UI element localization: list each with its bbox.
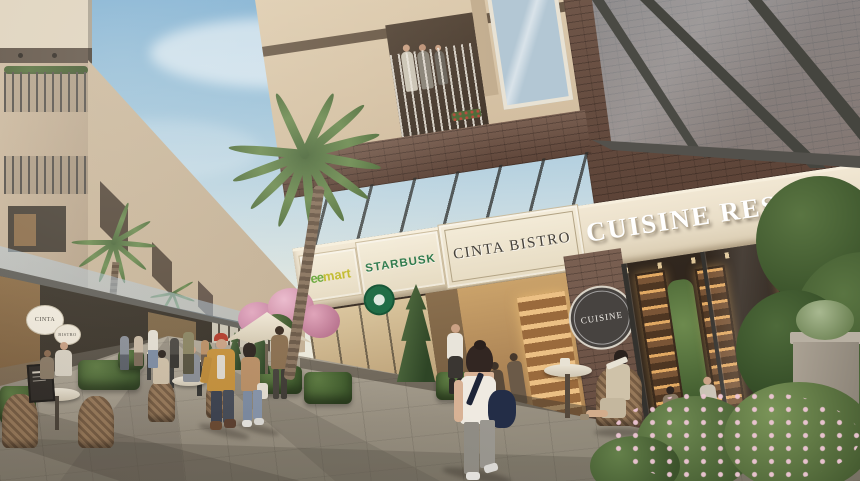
table-item [560, 358, 570, 366]
pedestrian [134, 336, 143, 366]
starbusk-sign-label: STARBUSK [365, 253, 437, 275]
pedestrian [183, 332, 194, 374]
balcony-railing [4, 72, 88, 112]
left-building-fascia [0, 0, 92, 50]
cinta-oval-label: CINTA [35, 317, 55, 323]
left-building-soffit [0, 48, 92, 63]
bush-flowers [610, 390, 860, 481]
hair-bun [474, 340, 486, 350]
bistro-oval-sign: BISTRO [54, 324, 81, 345]
umbrella-pole [265, 344, 268, 374]
left-window [8, 206, 66, 252]
pedestrian [170, 338, 179, 368]
balcony-railing [4, 156, 88, 194]
planter-plant [796, 300, 854, 340]
hedge-planter [304, 372, 352, 404]
street-scene: eemart STARBUSK CINTA BISTRO CUISINE RES… [0, 0, 860, 481]
mart-sign-suffix: mart [322, 265, 352, 284]
downlight [18, 53, 23, 58]
pedestrian [120, 336, 129, 370]
pedestrian [148, 330, 158, 368]
bistro-oval-label: BISTRO [58, 332, 76, 337]
balcony-recess [385, 12, 489, 137]
balcony-railing [390, 42, 489, 137]
downlight [52, 53, 57, 58]
